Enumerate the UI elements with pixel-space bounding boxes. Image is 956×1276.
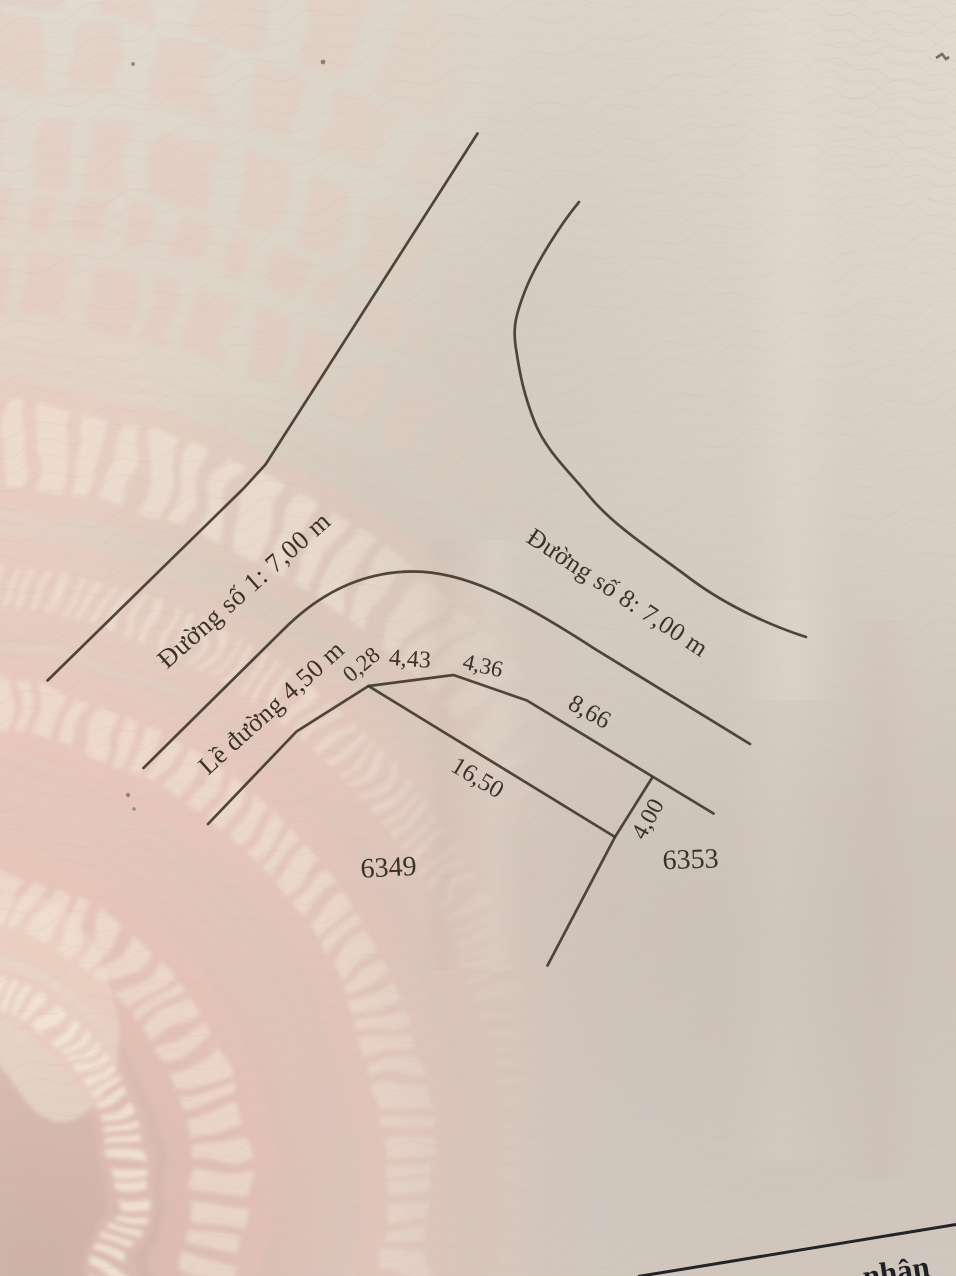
svg-text:6353: 6353 (662, 843, 719, 876)
svg-text:6349: 6349 (360, 851, 418, 885)
svg-text:4,43: 4,43 (388, 645, 432, 674)
